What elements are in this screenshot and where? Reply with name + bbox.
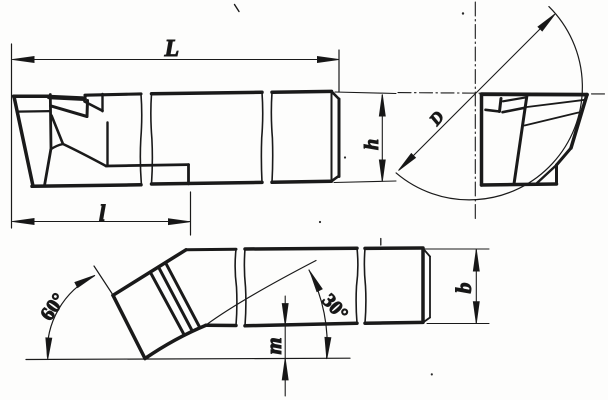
svg-text:l: l [99, 201, 106, 226]
svg-text:m: m [261, 337, 286, 354]
svg-text:b: b [451, 283, 476, 294]
svg-text:D: D [425, 107, 448, 129]
svg-text:L: L [164, 36, 180, 62]
svg-text:h: h [361, 139, 383, 150]
svg-text:60°: 60° [36, 289, 70, 325]
svg-text:30°: 30° [317, 290, 352, 326]
